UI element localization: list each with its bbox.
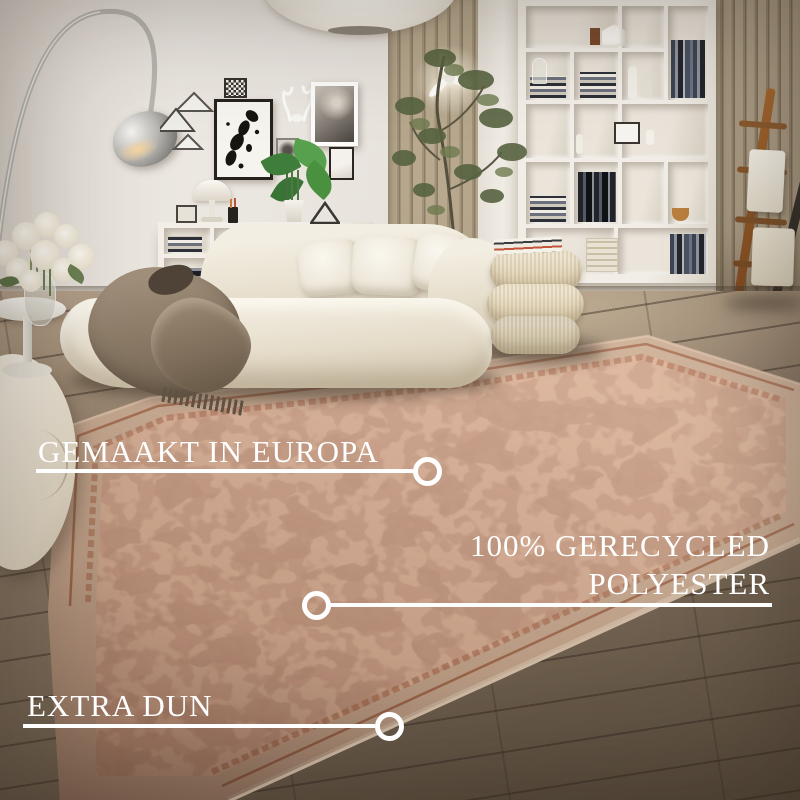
rug <box>0 0 800 800</box>
book-stack <box>168 236 202 252</box>
annotation-made-in: GEMAAKT IN EUROPA <box>38 434 379 470</box>
desk-frame <box>176 205 197 223</box>
annotation-circle <box>413 457 442 486</box>
side-table-base <box>2 362 52 378</box>
rose <box>20 270 42 292</box>
pouf-ring <box>491 316 580 354</box>
ladder-shadow <box>724 296 800 310</box>
annotation-line <box>330 603 772 607</box>
monstera-stems <box>291 168 293 202</box>
annotation-circle <box>375 712 404 741</box>
pencils <box>230 199 232 208</box>
pencil-cup <box>228 207 238 223</box>
annotation-extra-thin: EXTRA DUN <box>27 688 213 724</box>
triangle-decor <box>310 201 340 225</box>
product-photo-scene: GEMAAKT IN EUROPA 100% GERECYCLED POLYES… <box>0 0 800 800</box>
annotation-circle <box>302 591 331 620</box>
annotation-material-1: 100% GERECYCLED <box>470 528 770 564</box>
mushroom-lamp-base <box>201 217 223 222</box>
annotation-line <box>36 469 413 473</box>
annotation-material-2: POLYESTER <box>588 566 770 602</box>
annotation-line <box>23 724 375 728</box>
